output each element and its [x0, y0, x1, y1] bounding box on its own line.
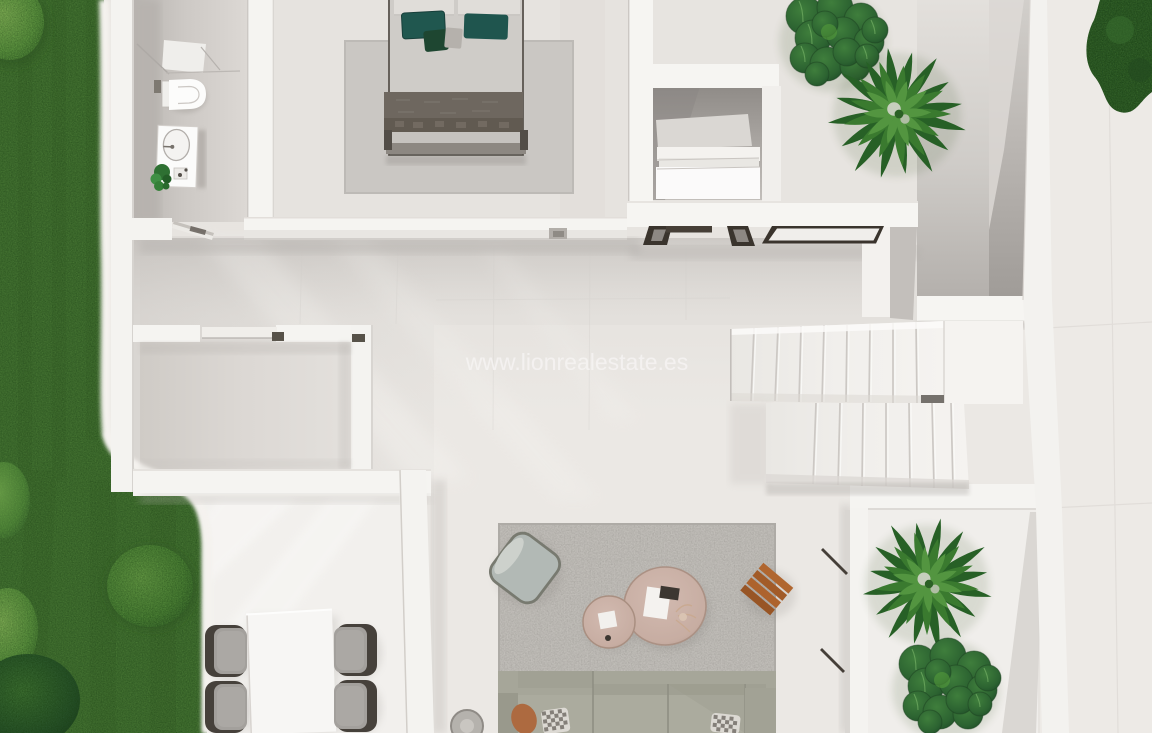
svg-text:www.lionrealestate.es: www.lionrealestate.es — [465, 349, 688, 375]
